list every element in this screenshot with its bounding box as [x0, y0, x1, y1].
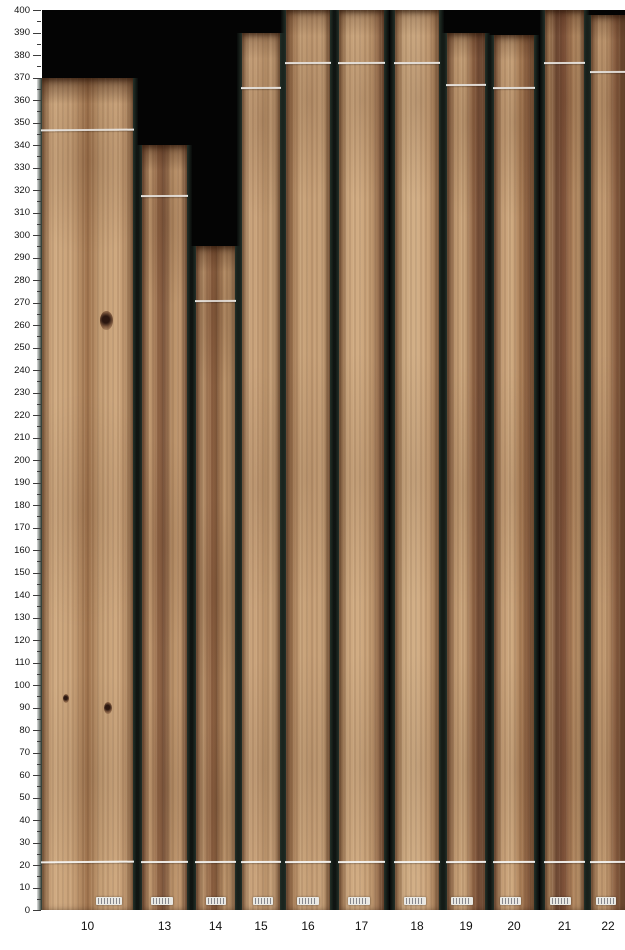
y-major-tick — [33, 258, 41, 259]
trim-line-top — [285, 62, 331, 64]
board-end-darkening — [286, 10, 330, 36]
trim-line-bottom — [394, 860, 440, 862]
y-major-tick — [33, 213, 41, 214]
board-number-label: 20 — [494, 919, 534, 933]
y-tick-label: 220 — [2, 411, 30, 421]
board-14[interactable] — [196, 246, 235, 910]
trim-line-bottom — [241, 860, 281, 862]
y-tick-label: 20 — [2, 861, 30, 871]
y-major-tick — [33, 10, 41, 11]
y-major-tick — [33, 235, 41, 236]
y-tick-label: 50 — [2, 793, 30, 803]
board-end-darkening — [545, 10, 584, 36]
y-tick-label: 350 — [2, 118, 30, 128]
y-minor-tick — [37, 426, 41, 427]
y-major-tick — [33, 505, 41, 506]
board-22[interactable] — [591, 15, 625, 911]
y-minor-tick — [37, 876, 41, 877]
y-tick-label: 40 — [2, 816, 30, 826]
y-major-tick — [33, 415, 41, 416]
board-gap-shadow-left — [191, 246, 196, 910]
y-tick-label: 170 — [2, 523, 30, 533]
y-tick-label: 240 — [2, 366, 30, 376]
y-tick-label: 210 — [2, 433, 30, 443]
board-gap-shadow-right — [485, 33, 490, 911]
y-major-tick — [33, 348, 41, 349]
board-gap-shadow-right — [330, 10, 335, 910]
board-gap-shadow-left — [390, 10, 395, 910]
board-gap-shadow-right — [439, 10, 444, 910]
board-21[interactable] — [545, 10, 584, 910]
board-end-darkening — [395, 10, 439, 36]
trim-line-bottom — [338, 860, 385, 862]
y-major-tick — [33, 123, 41, 124]
y-minor-tick — [37, 539, 41, 540]
y-minor-tick — [37, 606, 41, 607]
board-number-label: 19 — [446, 919, 486, 933]
trim-line-top — [241, 86, 281, 88]
barcode-sticker — [206, 897, 226, 905]
y-tick-label: 80 — [2, 726, 30, 736]
y-minor-tick — [37, 696, 41, 697]
trim-line-top — [41, 129, 134, 132]
board-13[interactable] — [142, 145, 187, 910]
y-minor-tick — [37, 899, 41, 900]
y-major-tick — [33, 595, 41, 596]
y-tick-label: 130 — [2, 613, 30, 623]
y-tick-label: 10 — [2, 883, 30, 893]
knot-mark — [104, 702, 112, 714]
board-gap-shadow-right — [534, 35, 539, 910]
y-minor-tick — [37, 381, 41, 382]
board-end-darkening — [42, 78, 133, 104]
y-major-tick — [33, 78, 41, 79]
board-gap-shadow-left — [334, 10, 339, 910]
board-end-darkening — [339, 10, 384, 36]
y-minor-tick — [37, 516, 41, 517]
y-major-tick — [33, 618, 41, 619]
y-tick-label: 100 — [2, 681, 30, 691]
barcode-sticker — [253, 897, 273, 905]
barcode-sticker — [596, 897, 616, 905]
y-minor-tick — [37, 359, 41, 360]
trim-line-bottom — [544, 860, 585, 862]
y-minor-tick — [37, 404, 41, 405]
y-tick-label: 70 — [2, 748, 30, 758]
y-major-tick — [33, 910, 41, 911]
y-major-tick — [33, 775, 41, 776]
barcode-sticker — [96, 897, 122, 905]
board-gap-shadow-right — [133, 78, 138, 911]
y-minor-tick — [37, 291, 41, 292]
y-tick-label: 400 — [2, 6, 30, 16]
y-tick-label: 300 — [2, 231, 30, 241]
barcode-sticker — [348, 897, 370, 905]
board-gap-shadow-right — [384, 10, 389, 910]
y-major-tick — [33, 168, 41, 169]
barcode-sticker — [500, 897, 521, 905]
y-minor-tick — [37, 471, 41, 472]
y-minor-tick — [37, 719, 41, 720]
y-major-tick — [33, 528, 41, 529]
board-15[interactable] — [242, 33, 280, 911]
y-major-tick — [33, 325, 41, 326]
y-tick-label: 30 — [2, 838, 30, 848]
board-18[interactable] — [395, 10, 439, 910]
y-tick-label: 380 — [2, 51, 30, 61]
barcode-sticker — [404, 897, 426, 905]
y-minor-tick — [37, 831, 41, 832]
y-tick-label: 180 — [2, 501, 30, 511]
board-gap-shadow-right — [280, 33, 285, 911]
trim-line-bottom — [141, 860, 188, 862]
trim-line-bottom — [41, 860, 134, 863]
y-minor-tick — [37, 134, 41, 135]
y-minor-tick — [37, 629, 41, 630]
y-minor-tick — [37, 674, 41, 675]
board-19[interactable] — [447, 33, 485, 911]
board-gap-shadow-left — [237, 33, 242, 911]
y-tick-label: 0 — [2, 906, 30, 916]
y-tick-label: 140 — [2, 591, 30, 601]
y-minor-tick — [37, 156, 41, 157]
y-tick-label: 120 — [2, 636, 30, 646]
trim-line-top — [195, 300, 236, 302]
y-minor-tick — [37, 89, 41, 90]
trim-line-top — [394, 62, 440, 64]
y-tick-label: 330 — [2, 163, 30, 173]
y-major-tick — [33, 483, 41, 484]
trim-line-bottom — [493, 860, 535, 862]
y-minor-tick — [37, 336, 41, 337]
trim-line-top — [493, 86, 535, 88]
barcode-sticker — [451, 897, 473, 905]
board-end-darkening — [142, 145, 187, 171]
y-major-tick — [33, 438, 41, 439]
y-major-tick — [33, 33, 41, 34]
lumber-scan-chart: 0102030405060708090100110120130140150160… — [0, 0, 625, 950]
y-minor-tick — [37, 786, 41, 787]
y-minor-tick — [37, 764, 41, 765]
y-minor-tick — [37, 269, 41, 270]
y-tick-label: 200 — [2, 456, 30, 466]
y-major-tick — [33, 393, 41, 394]
y-minor-tick — [37, 224, 41, 225]
board-end-darkening — [196, 246, 235, 272]
y-major-tick — [33, 145, 41, 146]
board-number-label: 21 — [545, 919, 585, 933]
y-tick-label: 250 — [2, 343, 30, 353]
y-major-tick — [33, 370, 41, 371]
y-major-tick — [33, 190, 41, 191]
board-10[interactable] — [42, 78, 133, 911]
board-number-label: 14 — [196, 919, 236, 933]
barcode-sticker — [550, 897, 571, 905]
board-end-darkening — [591, 15, 625, 41]
y-major-tick — [33, 685, 41, 686]
board-number-label: 22 — [588, 919, 625, 933]
y-tick-label: 60 — [2, 771, 30, 781]
y-major-tick — [33, 573, 41, 574]
y-tick-label: 230 — [2, 388, 30, 398]
y-minor-tick — [37, 66, 41, 67]
board-gap-shadow-right — [584, 10, 589, 910]
y-major-tick — [33, 730, 41, 731]
board-number-label: 13 — [145, 919, 185, 933]
barcode-sticker — [297, 897, 319, 905]
board-gap-shadow-left — [489, 35, 494, 910]
board-end-darkening — [242, 33, 280, 59]
board-number-label: 17 — [342, 919, 382, 933]
y-minor-tick — [37, 111, 41, 112]
y-minor-tick — [37, 246, 41, 247]
y-tick-label: 320 — [2, 186, 30, 196]
y-tick-label: 150 — [2, 568, 30, 578]
y-minor-tick — [37, 561, 41, 562]
board-gap-shadow-left — [540, 10, 545, 910]
board-end-darkening — [447, 33, 485, 59]
y-minor-tick — [37, 201, 41, 202]
board-20[interactable] — [494, 35, 534, 910]
y-major-tick — [33, 663, 41, 664]
board-number-label: 16 — [288, 919, 328, 933]
trim-line-top — [544, 62, 585, 64]
board-16[interactable] — [286, 10, 330, 910]
y-major-tick — [33, 280, 41, 281]
y-minor-tick — [37, 449, 41, 450]
board-number-label: 15 — [241, 919, 281, 933]
y-major-tick — [33, 843, 41, 844]
trim-line-top — [141, 194, 188, 196]
y-tick-label: 340 — [2, 141, 30, 151]
y-tick-label: 390 — [2, 28, 30, 38]
board-gap-shadow-right — [235, 246, 240, 910]
y-minor-tick — [37, 314, 41, 315]
trim-line-bottom — [590, 860, 625, 862]
y-minor-tick — [37, 809, 41, 810]
y-major-tick — [33, 640, 41, 641]
y-major-tick — [33, 55, 41, 56]
y-minor-tick — [37, 21, 41, 22]
trim-line-top — [590, 71, 625, 73]
y-tick-label: 360 — [2, 96, 30, 106]
y-tick-label: 280 — [2, 276, 30, 286]
y-minor-tick — [37, 741, 41, 742]
board-number-label: 10 — [68, 919, 108, 933]
y-minor-tick — [37, 494, 41, 495]
y-major-tick — [33, 798, 41, 799]
trim-line-bottom — [446, 860, 486, 862]
board-gap-shadow-right — [187, 145, 192, 910]
knot-mark — [63, 694, 69, 703]
board-number-label: 18 — [397, 919, 437, 933]
y-major-tick — [33, 888, 41, 889]
y-tick-label: 260 — [2, 321, 30, 331]
y-minor-tick — [37, 179, 41, 180]
y-tick-label: 310 — [2, 208, 30, 218]
y-minor-tick — [37, 651, 41, 652]
board-gap-shadow-left — [442, 33, 447, 911]
y-major-tick — [33, 820, 41, 821]
barcode-sticker — [151, 897, 173, 905]
y-major-tick — [33, 460, 41, 461]
y-major-tick — [33, 708, 41, 709]
y-major-tick — [33, 753, 41, 754]
trim-line-bottom — [285, 860, 331, 862]
trim-line-top — [338, 62, 385, 64]
y-tick-label: 190 — [2, 478, 30, 488]
board-gap-shadow-left — [137, 145, 142, 910]
y-tick-label: 160 — [2, 546, 30, 556]
y-tick-label: 90 — [2, 703, 30, 713]
y-minor-tick — [37, 854, 41, 855]
y-tick-label: 110 — [2, 658, 30, 668]
y-major-tick — [33, 550, 41, 551]
knot-mark — [100, 311, 113, 331]
y-major-tick — [33, 865, 41, 866]
y-major-tick — [33, 303, 41, 304]
y-minor-tick — [37, 44, 41, 45]
board-17[interactable] — [339, 10, 384, 910]
trim-line-top — [446, 84, 486, 86]
y-minor-tick — [37, 584, 41, 585]
trim-line-bottom — [195, 860, 236, 862]
board-gap-shadow-left — [281, 10, 286, 910]
y-tick-label: 290 — [2, 253, 30, 263]
board-end-darkening — [494, 35, 534, 61]
plot-area — [42, 10, 625, 910]
y-tick-label: 370 — [2, 73, 30, 83]
board-gap-shadow-left — [586, 15, 591, 911]
y-major-tick — [33, 100, 41, 101]
y-tick-label: 270 — [2, 298, 30, 308]
